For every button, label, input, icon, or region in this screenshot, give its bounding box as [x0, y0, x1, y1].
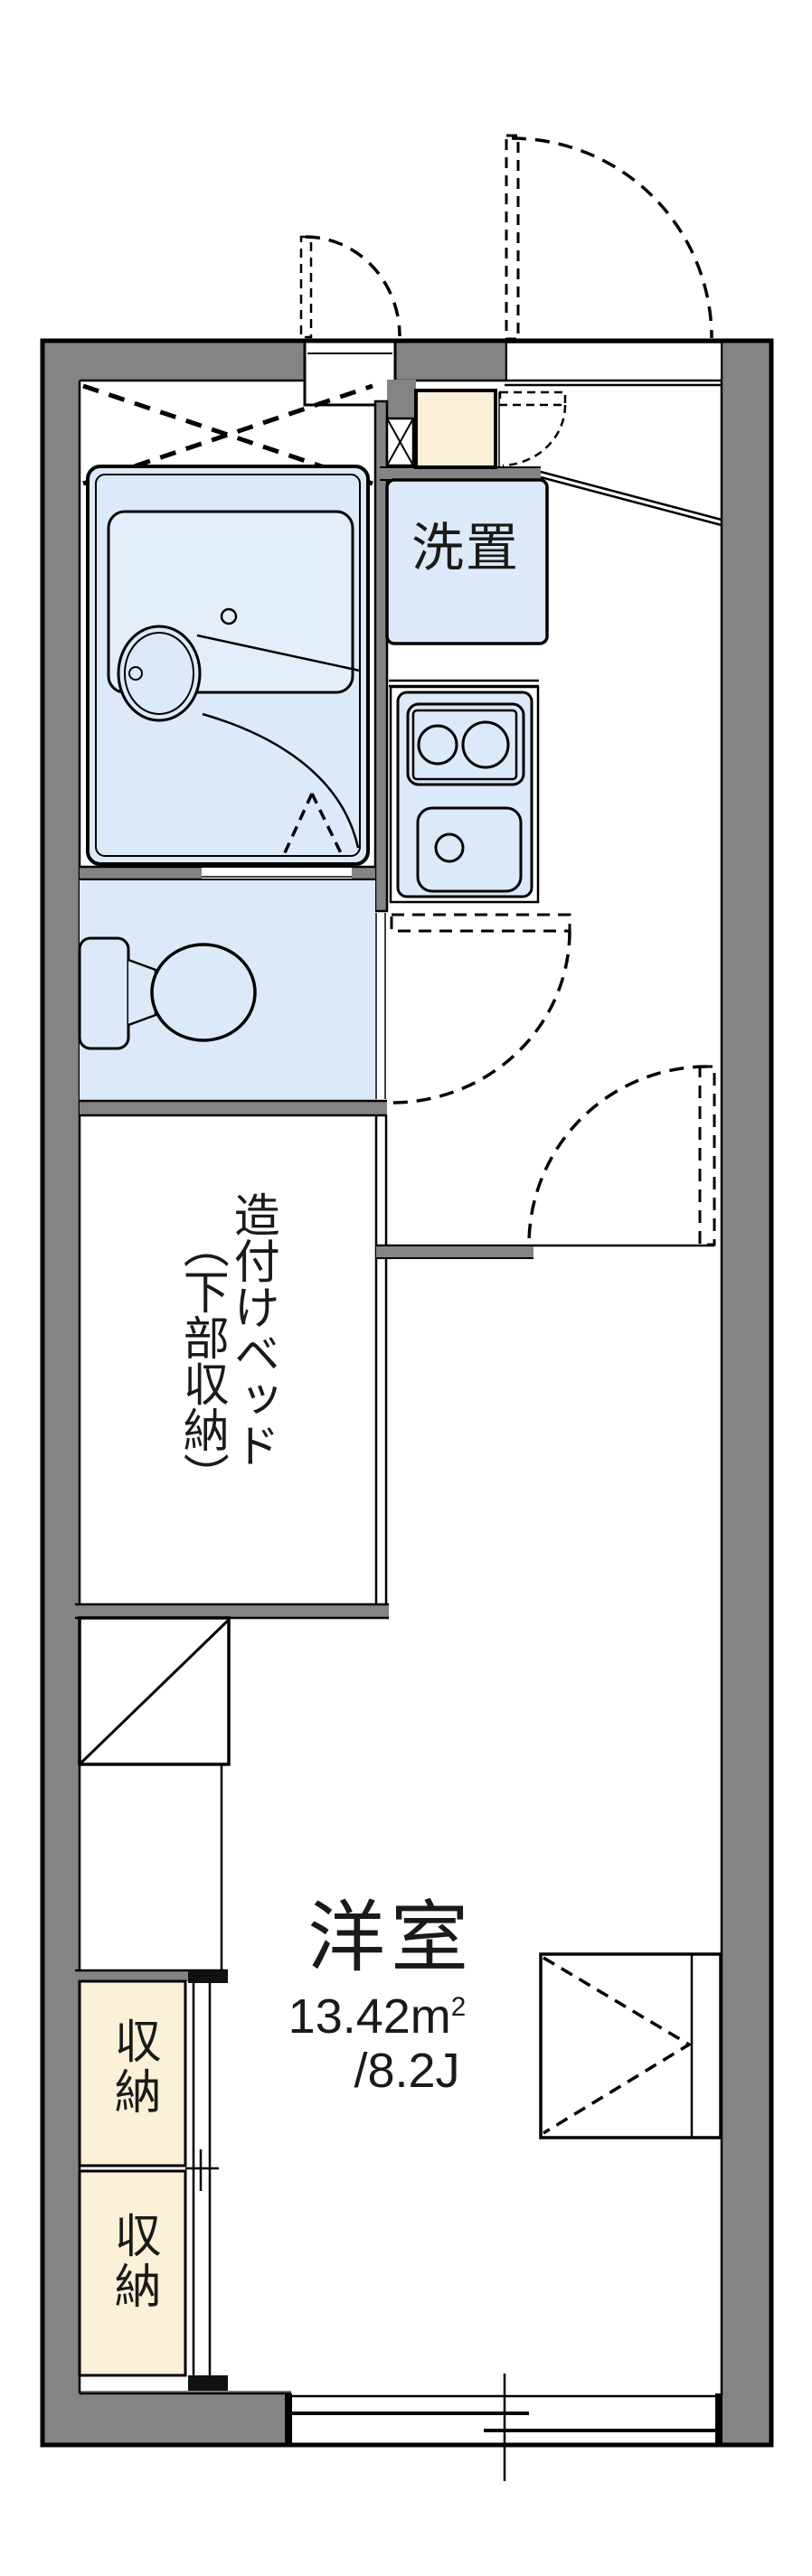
entrance-door-swing	[506, 136, 712, 339]
toilet-south-wall	[80, 1101, 387, 1115]
toilet-doorway	[376, 913, 385, 1099]
wash-basin	[118, 626, 200, 720]
bathroom	[83, 386, 373, 864]
toilet-door-swing	[392, 915, 570, 1103]
drain-icon	[222, 609, 236, 624]
built-in-bed-label-line2: （下部収納）	[175, 1222, 230, 1499]
entrance-step-edge	[541, 472, 722, 525]
shoe-door-swing	[500, 392, 565, 405]
kitchen-sink	[418, 808, 521, 891]
bathroom-window-swing	[301, 237, 400, 337]
bed-step	[80, 1618, 229, 1972]
floor-plan: 洗置 造付けベッド （下部収納） 洋室 13.42m2 /8.2J 収納 収納	[0, 0, 812, 2576]
area-value: 13.42m	[288, 1989, 451, 2044]
main-room-area: 13.42m2	[269, 1990, 486, 2043]
kitchen-counter	[389, 681, 539, 902]
fold-table	[541, 1954, 721, 2138]
hallway-west-wall	[376, 1115, 386, 1604]
burner-icon	[419, 726, 457, 764]
built-in-bed-label-line1: 造付けベッド	[225, 1191, 280, 1468]
washer-space-label: 洗置	[411, 521, 520, 578]
toilet-bowl	[152, 945, 255, 1040]
main-room-label: 洋室	[307, 1896, 474, 1980]
main-room-tatami: /8.2J	[298, 2045, 515, 2097]
entrance-tataki	[416, 390, 496, 467]
sink-drain-icon	[436, 834, 463, 861]
floor-plan-drawing	[0, 0, 812, 2576]
area-exponent: 2	[451, 1992, 467, 2022]
storage-upper-label: 収納	[108, 2017, 158, 2118]
room-door-swing	[529, 1067, 714, 1245]
bath-toilet-wall	[80, 867, 375, 879]
burner-icon	[463, 722, 508, 767]
toilet-room	[80, 880, 375, 1101]
storage-lower-label: 収納	[108, 2211, 158, 2312]
main-room-north-wall	[376, 1246, 714, 1258]
toilet-tank	[80, 938, 128, 1048]
bed-room-south-wall	[75, 1604, 389, 1618]
balcony-window	[285, 2374, 722, 2481]
entrance-recess	[507, 343, 721, 381]
